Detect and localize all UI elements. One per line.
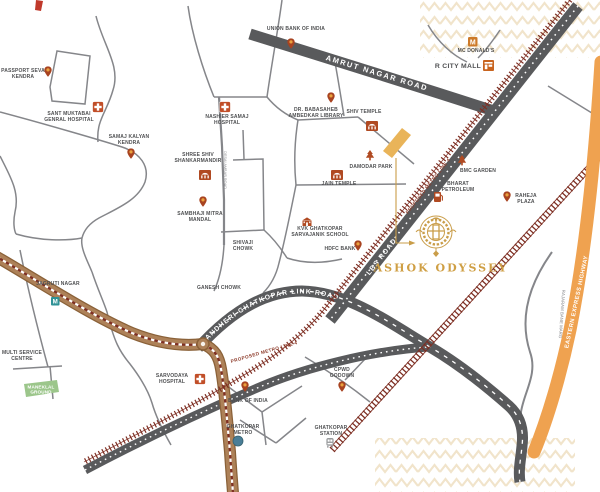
minor-road [287,258,342,262]
project-title: ASHOK ODYSSEY [374,262,509,275]
minor-road [243,130,244,159]
label-damodar-park: DAMODAR PARK [349,165,392,171]
r-city-mall-icon [483,60,494,71]
label-ghatkopar-metro: GHATKOPAR METRO [227,425,260,437]
label-ganesh-chowk: GANESH CHOWK [197,286,241,292]
mcdonalds-letter: M [470,39,476,46]
ghatkopar-metro-station-icon [233,436,243,446]
label-mcdonalds: MC DONALD'S [458,49,495,55]
label-shankar-mandir: SHREE SHIV SHANKARMANDIR [175,153,222,165]
road-name-desai-ambar: DESAI AMBAR ROAD [223,151,227,189]
label-r-city-mall: R CITY MALL [435,63,481,71]
watermark-pattern-bottom [375,438,575,492]
label-multi-service-centre: MULTI SERVICE CENTRE [2,351,42,363]
label-jagruti-nagar: JAGRUTI NAGAR [36,282,80,288]
minor-road [16,234,82,240]
metro-letter: M [53,299,58,306]
map-canvas: ANDHERI GHATKOPAR LINK ROAD [0,0,600,492]
minor-road [263,185,296,293]
jain-temple-icon [331,170,343,180]
label-hdfc-bank: HDFC BANK [324,247,355,253]
logo-fragment-mark [35,0,43,11]
location-map: ANDHERI GHATKOPAR LINK ROAD [0,0,600,492]
mcdonalds-icon: M [468,37,478,47]
passport-seva-kendra-pin-icon [44,66,51,76]
label-bharat-petroleum: BHARAT PETROLEUM [442,182,475,194]
sambhaji-mitra-pin-icon [199,196,206,206]
label-jain-temple: JAIN TEMPLE [322,182,357,188]
label-passport-seva-kendra: PASSPORT SEVA KENDRA [1,69,45,81]
label-ghatkopar-station: GHATKOPAR STATION [315,426,348,438]
samaj-kalyan-kendra-pin-icon [127,148,134,158]
shankar-mandir-temple-icon [199,170,211,180]
minor-road [92,272,171,445]
label-raheja-plaza: RAHEJA PLAZA [515,194,536,206]
label-ambedkar-library: DR. BABASAHEB AMBEDKAR LIBRARY [289,108,344,120]
minor-road [221,230,264,232]
label-nashier-hospital: NASHIER SAMAJ HOSPITAL [205,115,248,127]
label-bmc-garden: BMC GARDEN [460,169,496,175]
sarvodaya-hospital-icon [195,374,206,385]
minor-road [233,159,264,230]
label-union-bank: UNION BANK OF INDIA [267,27,325,33]
minor-roads [0,0,600,449]
minor-road [295,120,298,185]
ghatkopar-station-train-icon [326,438,333,448]
label-samaj-kalyan-kendra: SAMAJ KALYAN KENDRA [109,135,150,147]
label-kvk-school: KVK GHATKOPAR SARVAJANIK SCHOOL [291,227,348,239]
kvk-school-icon [303,217,312,226]
eastern-express-highway [534,62,600,452]
raheja-plaza-pin-icon [503,191,510,201]
sant-muktabai-hospital-icon [93,102,104,113]
label-sant-muktabai-hospital: SANT MUKTABAI GENRAL HOSPITAL [44,112,94,124]
nashier-hospital-icon [220,102,231,113]
arrow-icon [409,241,416,246]
label-sarvodaya-hospital: SARVODAYA HOSPITAL [156,374,188,386]
jagruti-metro-station-icon: M [51,297,60,306]
minor-road [96,16,115,142]
ashok-odyssey-logo [416,216,456,257]
minor-road [188,6,214,97]
label-bank-of-india: BANK OF INDIA [228,399,268,405]
shiv-temple-icon [366,121,378,131]
minor-road [0,156,16,234]
minor-road [50,51,90,104]
label-cpwd-godown: CPWD GODOWN [330,368,355,380]
cpwd-godown-pin-icon [338,381,345,391]
project-site-marker [383,128,411,158]
label-maneklal-ground: MANEKLAL GROUND [28,385,55,396]
label-sambhaji-mitra: SAMBHAJI MITRA MANDAL [177,212,222,224]
label-shivaji-chowk: SHIVAJI CHOWK [233,241,253,253]
ambedkar-library-pin-icon [327,92,334,102]
label-shiv-temple: SHIV TEMPLE [347,110,382,116]
damodar-park-tree-icon [366,150,374,160]
